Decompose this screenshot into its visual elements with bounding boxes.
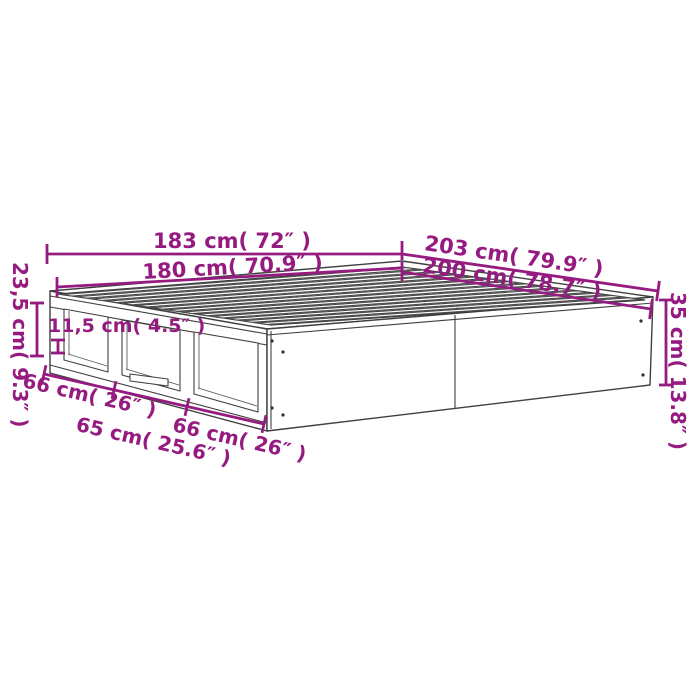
dim-side-height-label: 23,5 cm( 9.3″ ) [8,262,32,428]
product-dimension-image: 183 cm( 72″ ) 180 cm( 70.9″ ) 203 cm( 79… [0,0,700,700]
dim-opening-height-label: 11,5 cm( 4.5″ ) [48,315,205,337]
screw-dot [639,319,642,322]
bed-frame-diagram: 183 cm( 72″ ) 180 cm( 70.9″ ) 203 cm( 79… [0,0,700,700]
screw-dot [270,339,273,342]
screw-dot [281,350,284,353]
screw-dot [270,406,273,409]
dim-total-height-label: 35 cm( 13.8″ ) [666,292,690,450]
screw-dot [641,373,644,376]
dim-width-outer-label: 183 cm( 72″ ) [153,229,311,253]
screw-dot [281,413,284,416]
